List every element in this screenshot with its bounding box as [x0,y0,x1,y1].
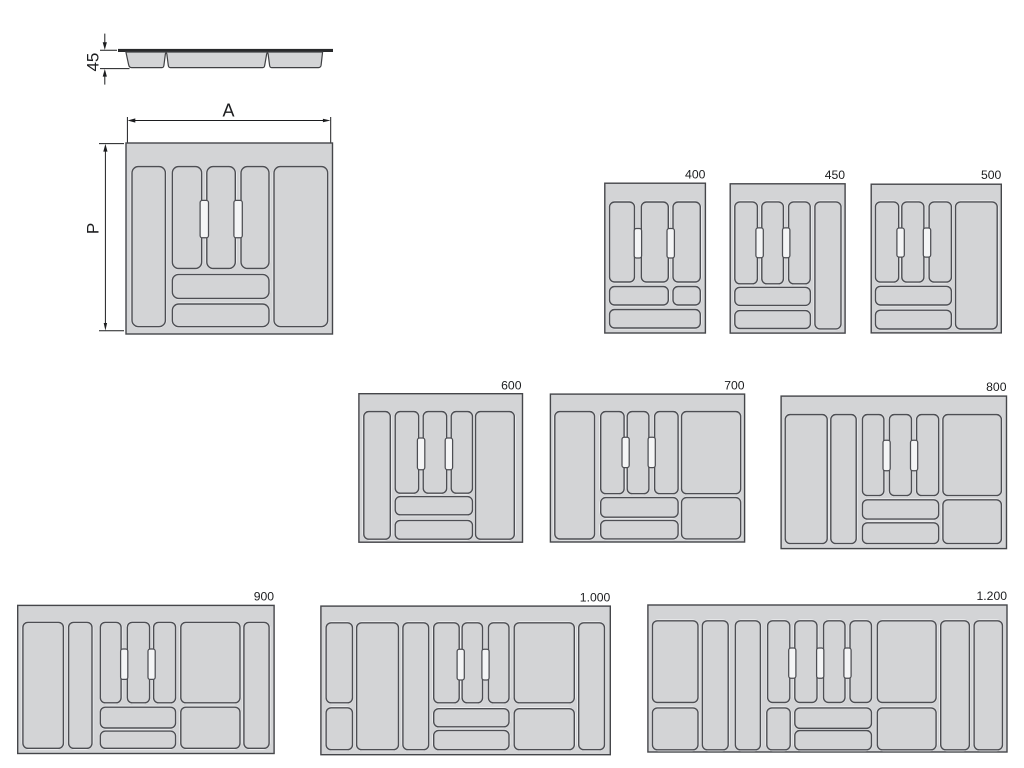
svg-text:450: 450 [825,168,846,182]
svg-text:400: 400 [685,167,706,181]
svg-text:1.200: 1.200 [977,589,1008,603]
svg-text:800: 800 [986,380,1007,394]
svg-text:A: A [222,101,234,121]
svg-text:600: 600 [501,378,522,392]
svg-text:700: 700 [724,378,745,392]
svg-text:45: 45 [83,53,102,72]
svg-text:500: 500 [981,168,1002,182]
svg-text:900: 900 [254,590,275,604]
svg-text:1.000: 1.000 [580,590,611,604]
svg-text:P: P [84,223,103,234]
